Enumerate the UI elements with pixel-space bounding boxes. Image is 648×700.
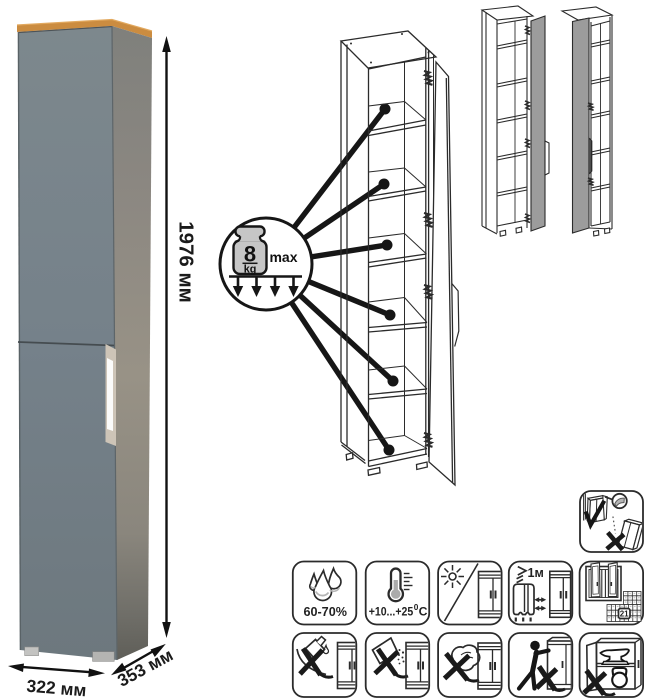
svg-text:21: 21	[620, 609, 629, 618]
svg-text:322 мм: 322 мм	[26, 676, 87, 700]
svg-text:+10...+25: +10...+25	[369, 605, 414, 619]
svg-text:C: C	[419, 605, 428, 619]
svg-text:1976 мм: 1976 мм	[175, 221, 198, 303]
svg-text:60-70%: 60-70%	[303, 605, 346, 619]
svg-text:1м: 1м	[528, 566, 544, 580]
svg-text:kg: kg	[244, 264, 257, 276]
svg-text:max: max	[269, 249, 297, 265]
